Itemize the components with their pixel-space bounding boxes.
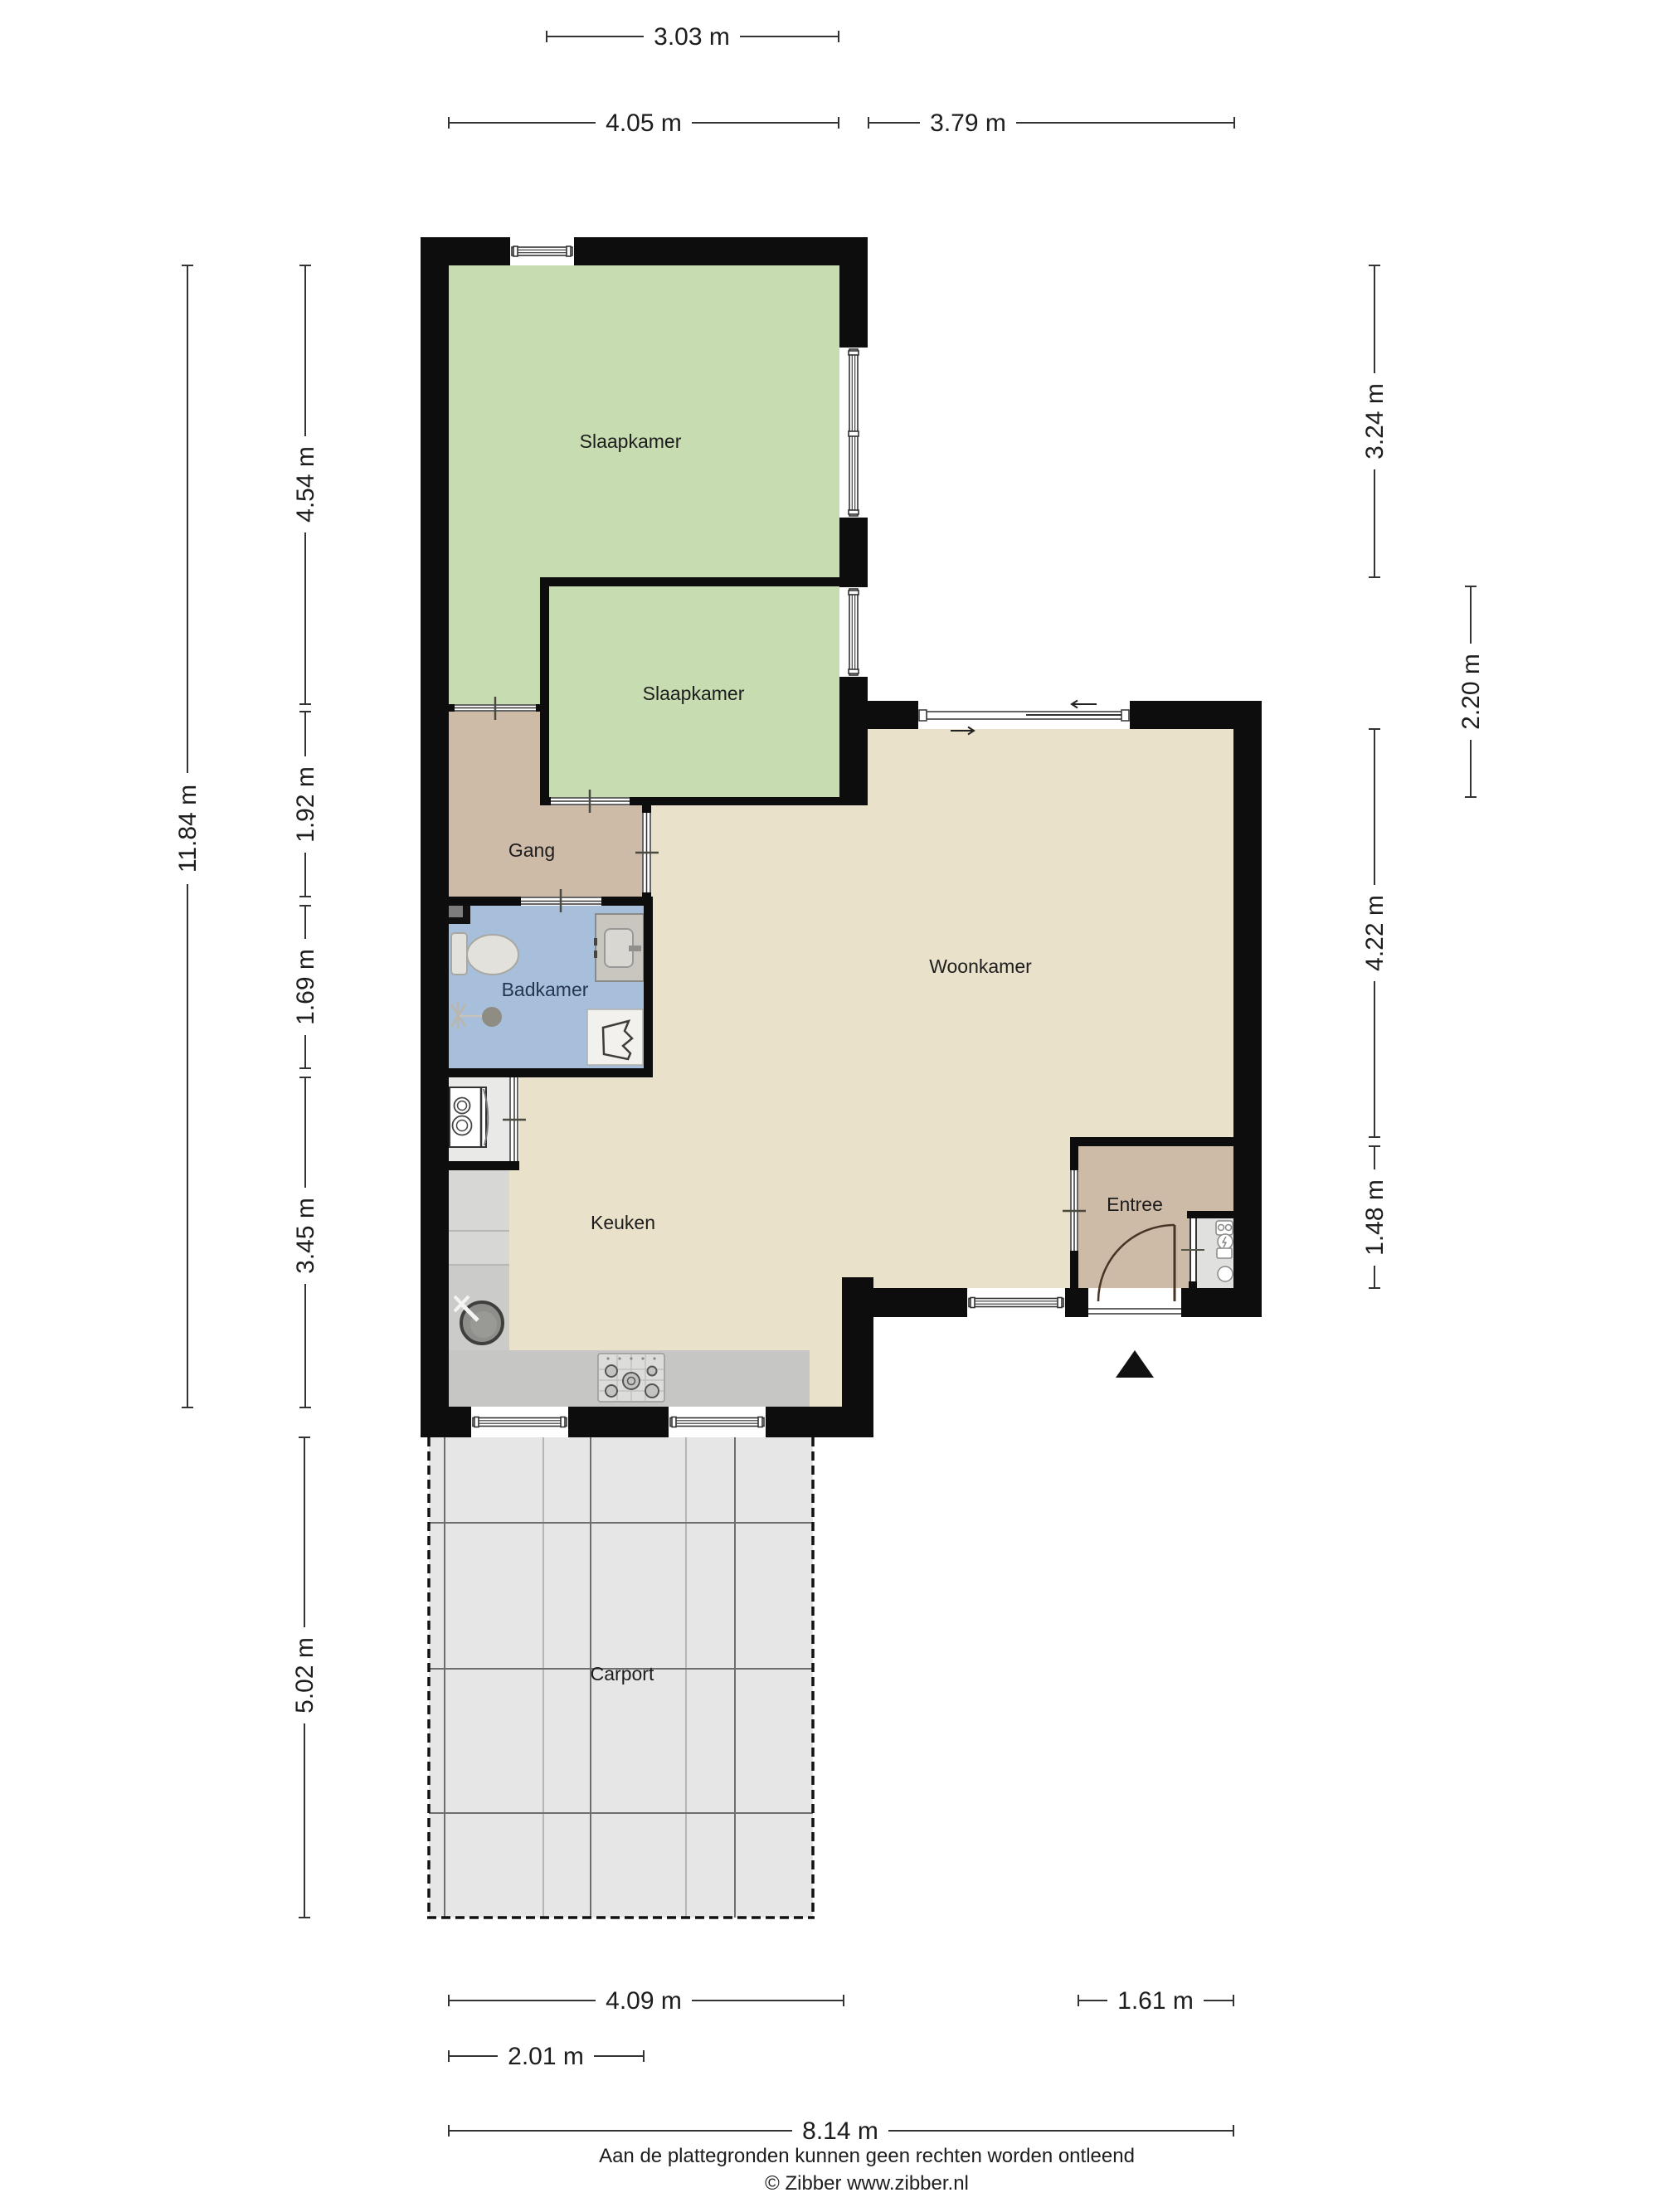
- svg-text:4.54 m: 4.54 m: [292, 446, 319, 523]
- svg-text:3.24 m: 3.24 m: [1361, 383, 1389, 459]
- svg-text:3.45 m: 3.45 m: [292, 1198, 319, 1274]
- svg-text:Gang: Gang: [508, 839, 555, 861]
- svg-text:Entree: Entree: [1107, 1194, 1163, 1215]
- svg-text:8.14 m: 8.14 m: [802, 2117, 878, 2145]
- svg-text:3.79 m: 3.79 m: [930, 109, 1006, 137]
- svg-text:Slaapkamer: Slaapkamer: [580, 430, 682, 452]
- svg-text:2.01 m: 2.01 m: [508, 2043, 584, 2070]
- svg-text:3.03 m: 3.03 m: [654, 23, 730, 51]
- svg-text:1.48 m: 1.48 m: [1361, 1179, 1389, 1256]
- svg-text:1.92 m: 1.92 m: [292, 766, 319, 843]
- svg-text:1.61 m: 1.61 m: [1117, 1987, 1194, 2015]
- svg-text:4.09 m: 4.09 m: [606, 1987, 682, 2015]
- svg-text:11.84 m: 11.84 m: [174, 785, 202, 873]
- svg-text:4.22 m: 4.22 m: [1361, 895, 1389, 971]
- svg-text:© Zibber www.zibber.nl: © Zibber www.zibber.nl: [765, 2172, 969, 2195]
- svg-text:4.05 m: 4.05 m: [606, 109, 682, 137]
- svg-text:Woonkamer: Woonkamer: [929, 955, 1032, 977]
- svg-text:Slaapkamer: Slaapkamer: [643, 683, 745, 704]
- svg-text:2.20 m: 2.20 m: [1457, 654, 1485, 730]
- svg-text:1.69 m: 1.69 m: [292, 949, 319, 1025]
- svg-text:Aan de plattegronden kunnen ge: Aan de plattegronden kunnen geen rechten…: [599, 2145, 1135, 2167]
- svg-text:Keuken: Keuken: [591, 1212, 655, 1233]
- svg-text:Badkamer: Badkamer: [502, 979, 589, 1000]
- svg-text:Carport: Carport: [591, 1663, 654, 1685]
- svg-text:5.02 m: 5.02 m: [291, 1637, 319, 1714]
